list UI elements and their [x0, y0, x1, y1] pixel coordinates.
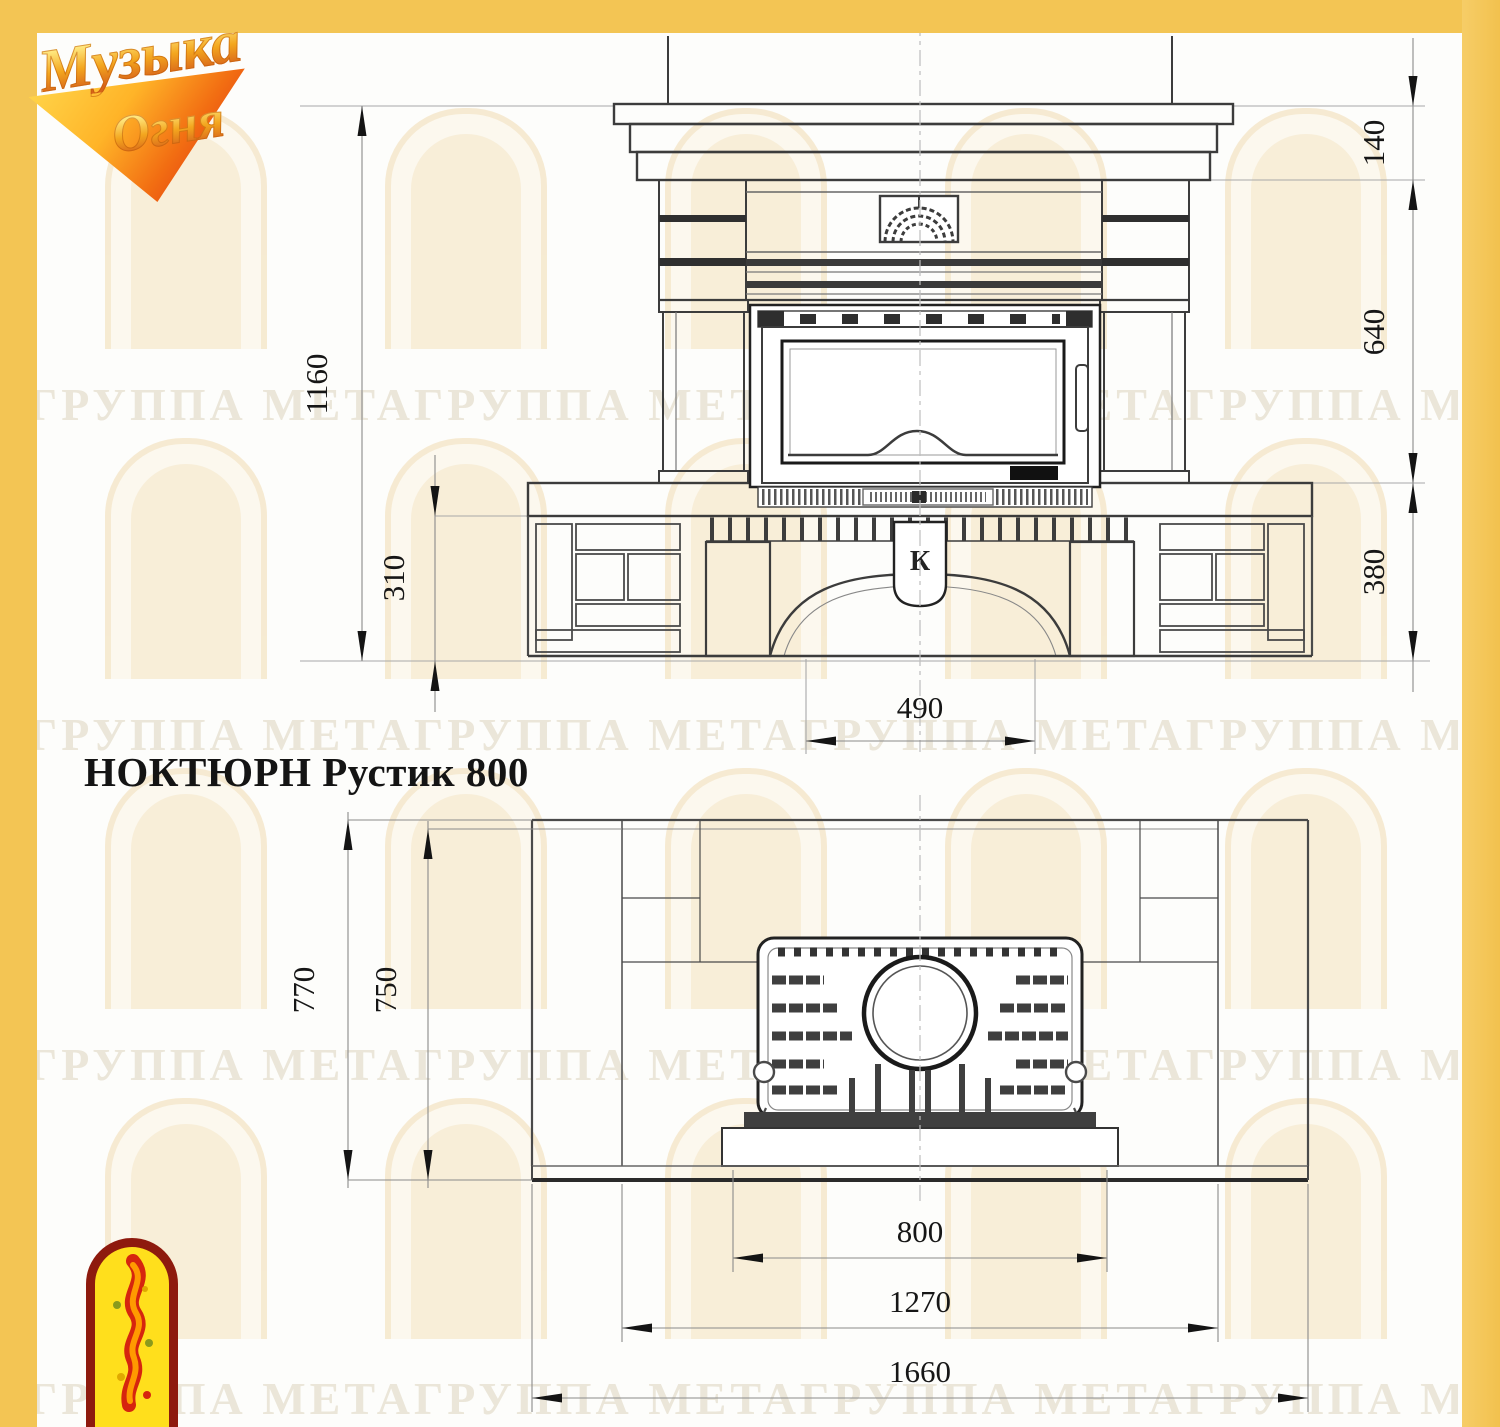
plan-view-drawing: 770 750 800 1270 1660 [286, 795, 1308, 1412]
flame-figure-icon [95, 1247, 169, 1427]
dim-750: 750 [368, 967, 403, 1014]
dim-490: 490 [897, 690, 944, 725]
frame-right-strip [1462, 0, 1500, 1427]
brand-logo: Музыка Огня [12, 6, 292, 216]
door-handle [1076, 365, 1088, 431]
shell-ornament [880, 196, 958, 242]
mantel-shelf [614, 104, 1233, 180]
dim-1660: 1660 [889, 1354, 951, 1389]
dim-800: 800 [897, 1214, 944, 1249]
model-title: НОКТЮРН Рустик 800 [84, 748, 529, 796]
dim-140: 140 [1356, 120, 1391, 167]
dim-640: 640 [1356, 309, 1391, 356]
dim-380: 380 [1356, 549, 1391, 596]
firebox-insert [750, 305, 1100, 507]
dim-1160: 1160 [299, 354, 334, 415]
dim-770: 770 [286, 967, 321, 1014]
front-view-drawing: К [299, 20, 1430, 754]
dim-310: 310 [376, 555, 411, 602]
drawing-page: ГРУППА МЕТАГРУППА МЕТАГРУППА МЕТАГРУППА … [0, 0, 1500, 1427]
dim-1270: 1270 [889, 1284, 951, 1319]
flame-emblem [86, 1238, 178, 1427]
